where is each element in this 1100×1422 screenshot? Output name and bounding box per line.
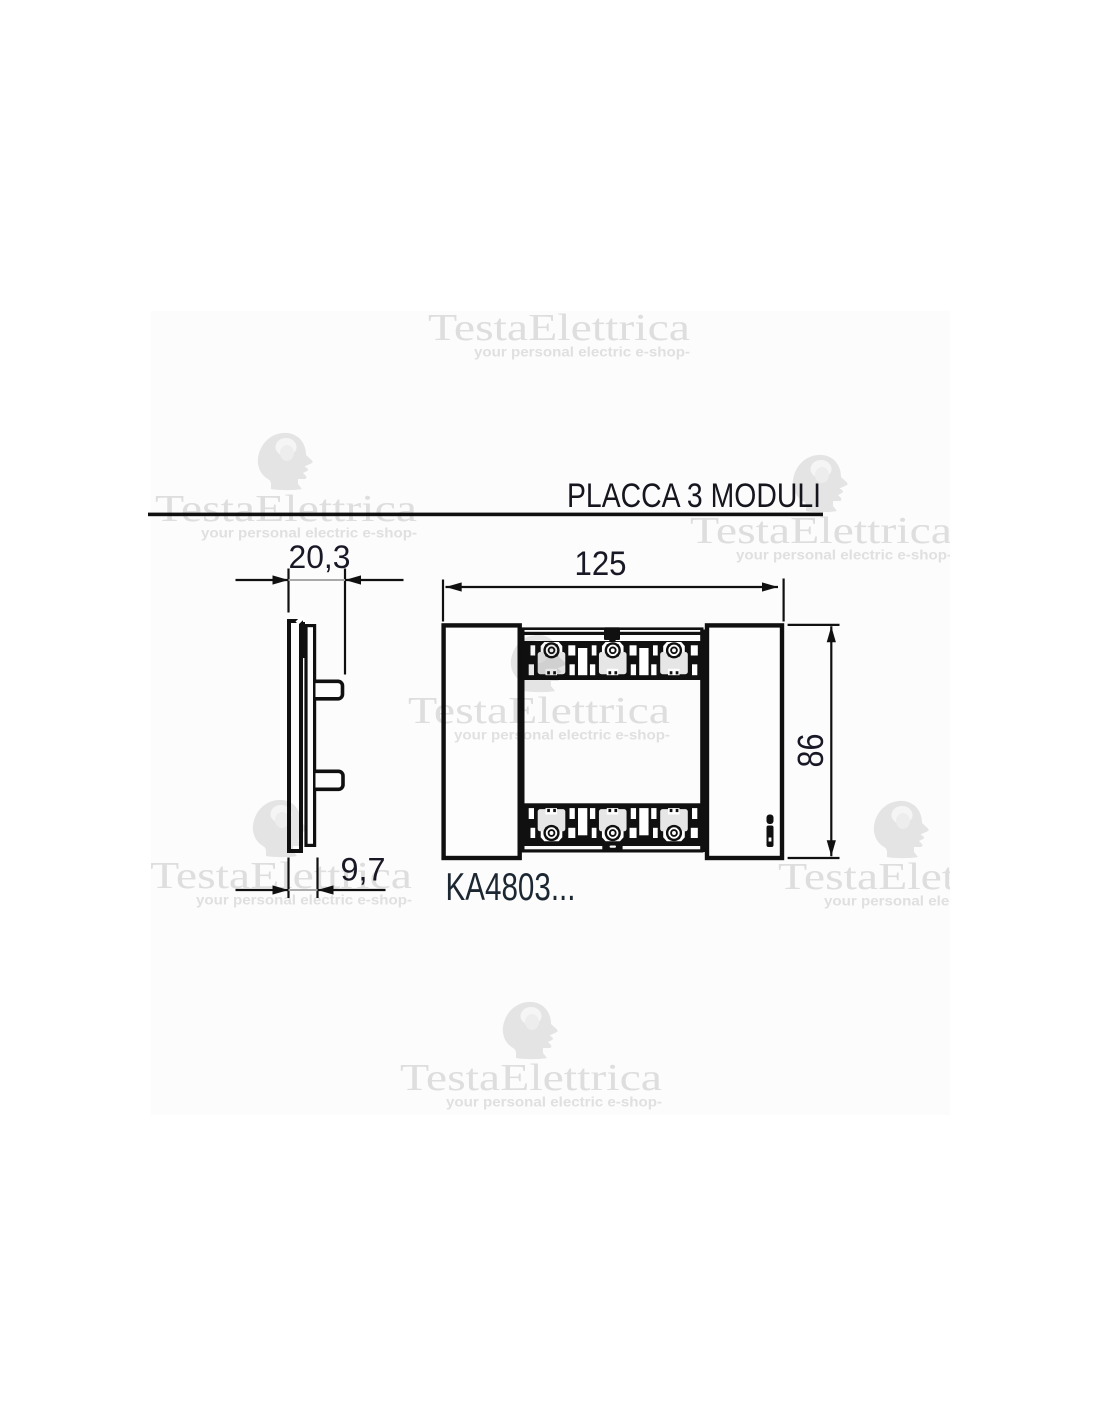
svg-text:TestaElettrica: TestaElettrica [155,488,417,530]
svg-text:your personal electric e-shop-: your personal electric e-shop- [201,526,417,541]
svg-text:your personal electric e-shop-: your personal electric e-shop- [824,894,950,909]
svg-text:your personal electric e-shop-: your personal electric e-shop- [446,1095,662,1110]
svg-text:your personal electric e-shop-: your personal electric e-shop- [736,548,950,563]
svg-text:your personal electric e-shop-: your personal electric e-shop- [474,345,690,360]
svg-text:your personal electric e-shop-: your personal electric e-shop- [454,728,670,743]
svg-text:TestaElettrica: TestaElettrica [408,690,670,732]
svg-text:TestaElettrica: TestaElettrica [400,1057,662,1099]
svg-text:your personal electric e-shop-: your personal electric e-shop- [196,893,412,908]
svg-text:TestaElettrica: TestaElettrica [778,856,950,898]
svg-text:TestaElettrica: TestaElettrica [428,311,690,349]
svg-text:TestaElettrica: TestaElettrica [151,855,412,897]
svg-text:TestaElettrica: TestaElettrica [690,510,950,552]
